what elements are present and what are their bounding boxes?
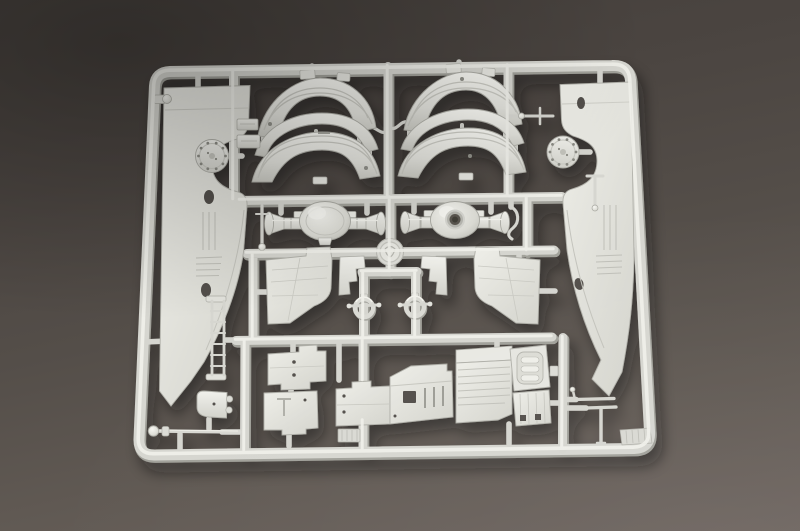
frame-lug	[154, 95, 172, 104]
left-side-panel	[160, 86, 251, 407]
right-hub-flange	[547, 136, 579, 168]
stepped-bracket-right	[421, 256, 447, 295]
sprue	[138, 62, 652, 457]
right-trapezoid-panel	[474, 247, 540, 324]
hatched-tab-left	[338, 429, 360, 442]
panel-hole	[577, 97, 585, 109]
corner-bracket	[197, 391, 233, 418]
stepped-plate-lower	[264, 391, 318, 435]
hook-rod	[509, 207, 518, 239]
left-hub-flange	[196, 140, 229, 173]
left-fender-pair	[252, 69, 380, 184]
panel-hole	[201, 283, 211, 297]
cab-assembly	[456, 345, 558, 426]
chassis-floor	[336, 364, 453, 426]
right-side-panel	[560, 82, 634, 396]
panel-hole	[204, 190, 214, 204]
stepped-plate-upper	[268, 345, 326, 390]
photo-scene	[0, 0, 800, 531]
